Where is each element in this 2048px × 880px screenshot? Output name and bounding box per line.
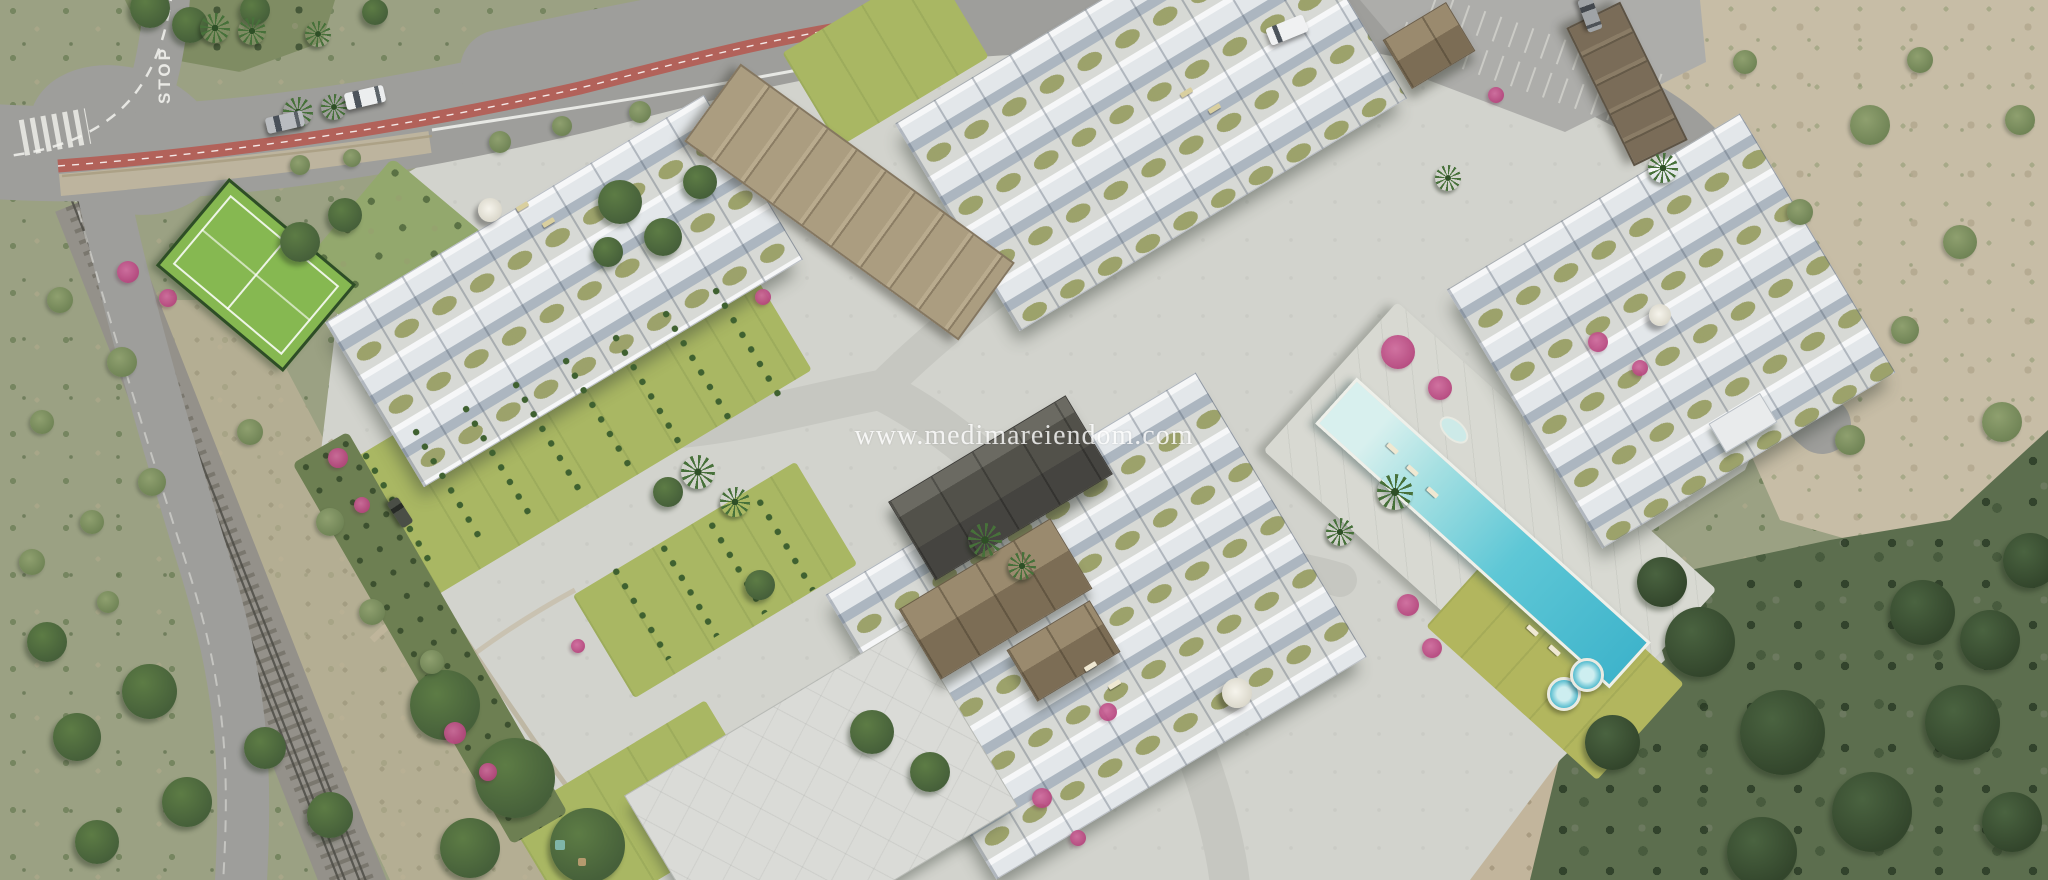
- bougainvillea: [1428, 376, 1452, 400]
- bush: [1787, 199, 1813, 225]
- tree: [162, 777, 212, 827]
- palm-tree: [681, 455, 715, 489]
- tree: [683, 165, 717, 199]
- palm-tree: [1008, 552, 1036, 580]
- bush: [80, 510, 104, 534]
- tree: [280, 222, 320, 262]
- bougainvillea: [1588, 332, 1608, 352]
- tree: [1832, 772, 1912, 852]
- bush: [489, 131, 511, 153]
- bougainvillea: [571, 639, 585, 653]
- bush: [237, 419, 263, 445]
- tree: [53, 713, 101, 761]
- palm-tree: [1377, 474, 1413, 510]
- palm-tree: [200, 13, 230, 43]
- palm-tree: [968, 523, 1002, 557]
- tree: [75, 820, 119, 864]
- bush: [1943, 225, 1977, 259]
- bush: [552, 116, 572, 136]
- bougainvillea: [755, 289, 771, 305]
- bougainvillea: [1099, 703, 1117, 721]
- bougainvillea: [1422, 638, 1442, 658]
- bush: [1850, 105, 1890, 145]
- bush: [290, 155, 310, 175]
- tree: [1585, 715, 1640, 770]
- bush: [1982, 402, 2022, 442]
- spa-pool: [1570, 658, 1604, 692]
- bush: [1733, 50, 1757, 74]
- bush: [107, 347, 137, 377]
- tree: [1960, 610, 2020, 670]
- tree: [122, 664, 177, 719]
- bougainvillea: [1070, 830, 1086, 846]
- tree: [328, 198, 362, 232]
- tree: [307, 792, 353, 838]
- bush: [343, 149, 361, 167]
- palm-tree: [720, 487, 750, 517]
- tree: [1890, 580, 1955, 645]
- bush: [2005, 105, 2035, 135]
- tree: [644, 218, 682, 256]
- playground-item: [578, 858, 586, 866]
- bougainvillea: [479, 763, 497, 781]
- tree: [244, 727, 286, 769]
- bush: [359, 599, 385, 625]
- palm-tree: [321, 94, 347, 120]
- stop-road-marking: STOP: [155, 46, 174, 104]
- tree: [27, 622, 67, 662]
- tree: [850, 710, 894, 754]
- tree: [1982, 792, 2042, 852]
- parasol: [1222, 678, 1252, 708]
- tree: [1665, 607, 1735, 677]
- tree: [745, 570, 775, 600]
- parasol: [1649, 304, 1671, 326]
- tree: [1727, 817, 1797, 880]
- palm-tree: [1435, 165, 1461, 191]
- palm-tree: [1648, 153, 1678, 183]
- palm-tree: [305, 21, 331, 47]
- bush: [1891, 316, 1919, 344]
- palm-tree: [1326, 518, 1354, 546]
- bougainvillea: [1032, 788, 1052, 808]
- bush: [316, 508, 344, 536]
- tree: [1925, 685, 2000, 760]
- bougainvillea: [1397, 594, 1419, 616]
- tree: [598, 180, 642, 224]
- bougainvillea: [1632, 360, 1648, 376]
- bush: [19, 549, 45, 575]
- bougainvillea: [159, 289, 177, 307]
- bush: [1835, 425, 1865, 455]
- bush: [97, 591, 119, 613]
- parasol: [478, 198, 502, 222]
- playground-item: [555, 840, 565, 850]
- bougainvillea: [1488, 87, 1504, 103]
- tree: [1740, 690, 1825, 775]
- bougainvillea: [328, 448, 348, 468]
- bush: [420, 650, 444, 674]
- aerial-development-render: STOP: [0, 0, 2048, 880]
- tree: [653, 477, 683, 507]
- tree: [910, 752, 950, 792]
- watermark-text: www.medimareiendom.com: [855, 420, 1194, 452]
- tree: [440, 818, 500, 878]
- tree: [593, 237, 623, 267]
- bush: [47, 287, 73, 313]
- bougainvillea: [444, 722, 466, 744]
- palm-tree: [238, 17, 266, 45]
- bougainvillea: [117, 261, 139, 283]
- bush: [1907, 47, 1933, 73]
- tree: [1637, 557, 1687, 607]
- tree: [362, 0, 388, 25]
- bougainvillea: [354, 497, 370, 513]
- bush: [629, 101, 651, 123]
- bougainvillea: [1381, 335, 1415, 369]
- bush: [138, 468, 166, 496]
- bush: [30, 410, 54, 434]
